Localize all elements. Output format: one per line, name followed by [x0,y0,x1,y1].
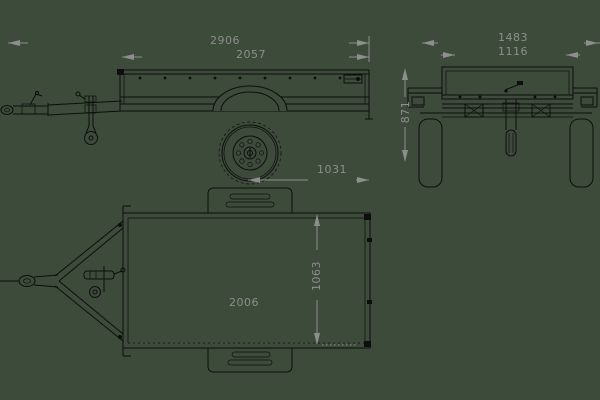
dim-side-box-length: 2057 [236,48,266,61]
dim-rear-overall-height: 871 [399,101,412,124]
fender-top-lower [208,348,292,372]
tire-rear-right [570,119,593,187]
jockey-wheel-top [84,266,125,298]
drawbar-top [55,221,123,341]
dim-rear-inner-width: 1116 [498,45,528,58]
fender-rear-left [408,88,442,107]
trailer-body-top [123,206,372,356]
dim-rear-overall-width: 1483 [498,31,528,44]
coupling-hitch [1,91,48,116]
fender-top-upper [208,188,292,213]
tire-rear-left [419,119,442,187]
wheel-side [219,122,281,184]
fender-side [213,86,287,111]
dim-top-inner-width: 1063 [310,261,323,291]
dim-top-inner-length: 2006 [229,296,259,309]
jockey-wheel-side [76,92,98,145]
rear-view [408,67,597,187]
coupling-top [0,275,58,287]
side-view-dimensions: 2906 2057 1031 [8,34,369,183]
rail-bolts [139,77,342,80]
dim-side-axle-to-rear: 1031 [317,163,347,176]
fender-rear-right [573,88,597,107]
top-view-dimensions: 2006 1063 [229,214,356,345]
trailer-technical-drawing: 2906 2057 1031 [0,0,600,400]
trailer-body-rear [442,67,573,99]
dim-side-overall-length: 2906 [210,34,240,47]
